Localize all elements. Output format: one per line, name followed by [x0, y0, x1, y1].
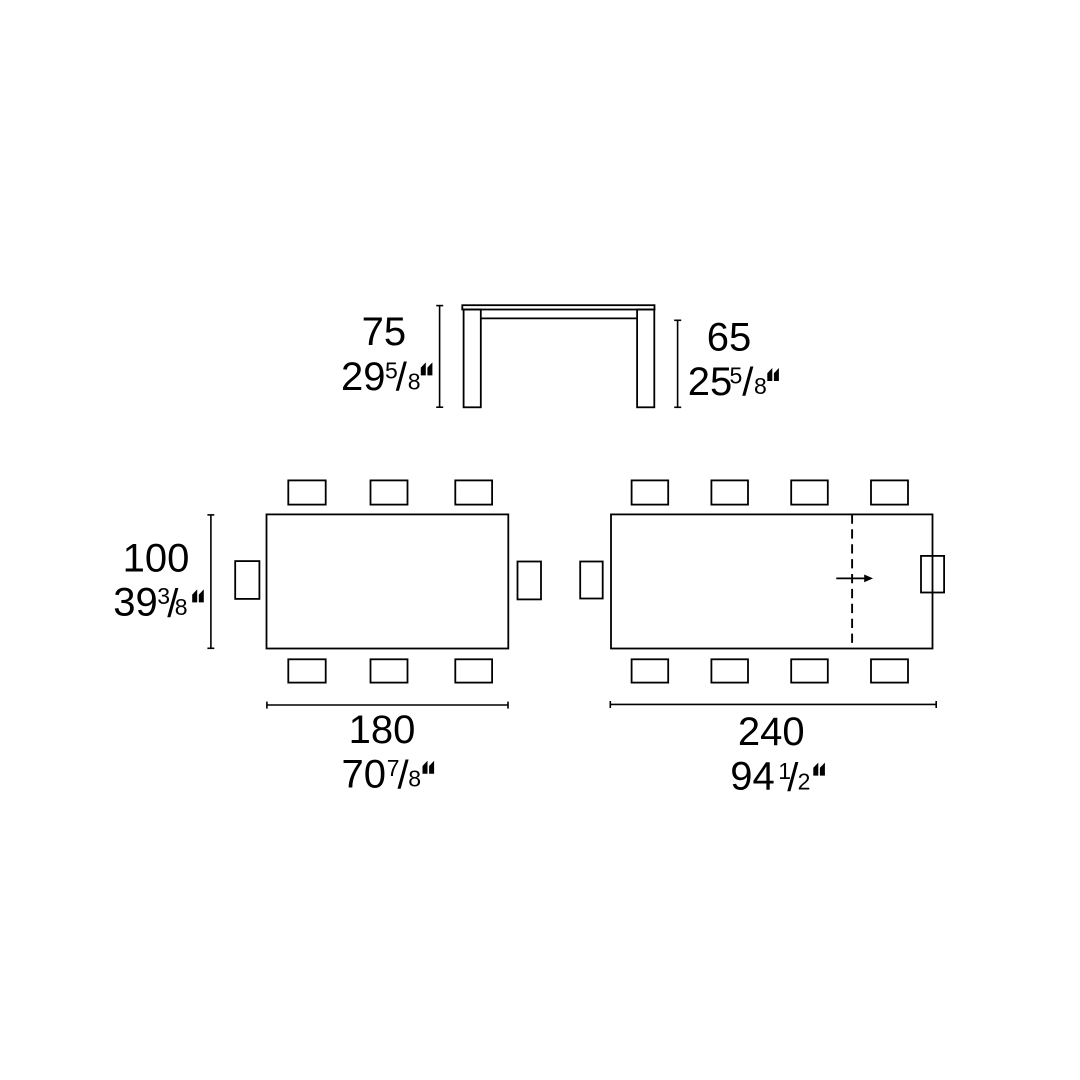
- svg-text:70: 70: [342, 752, 387, 796]
- svg-text:5: 5: [730, 362, 743, 388]
- svg-text:8: 8: [408, 368, 421, 394]
- svg-text:/: /: [742, 361, 754, 405]
- svg-text:8: 8: [175, 594, 188, 620]
- svg-text:65: 65: [707, 316, 752, 360]
- svg-text:/: /: [396, 356, 408, 400]
- svg-text:240: 240: [738, 710, 805, 754]
- svg-text:2: 2: [798, 769, 811, 795]
- svg-text:100: 100: [123, 537, 190, 581]
- svg-text:75: 75: [362, 310, 407, 354]
- svg-text:39: 39: [113, 581, 158, 625]
- svg-text:8: 8: [754, 373, 767, 399]
- svg-text:180: 180: [349, 708, 416, 752]
- svg-text:94: 94: [730, 755, 775, 799]
- svg-text:8: 8: [408, 766, 421, 792]
- svg-text:25: 25: [688, 360, 733, 404]
- svg-text:29: 29: [341, 355, 386, 399]
